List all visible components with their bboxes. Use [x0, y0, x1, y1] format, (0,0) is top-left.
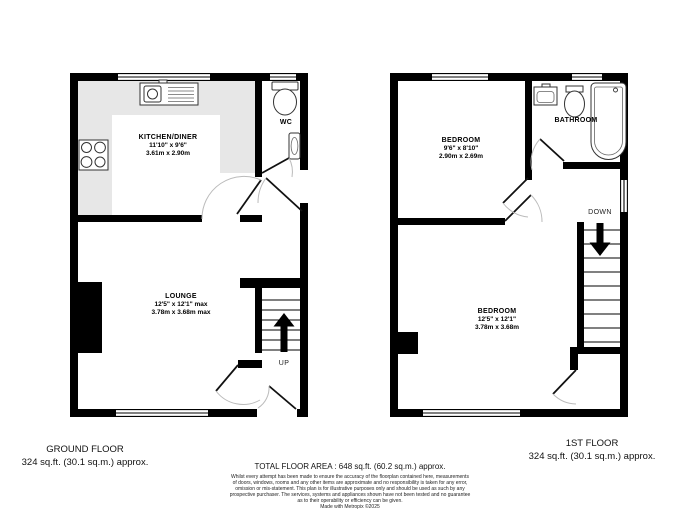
first-floor-plan: BEDROOM 9'6" x 8'10" 2.90m x 2.69m BATHR…	[390, 73, 628, 417]
floorplan-page: KITCHEN/DINER 11'10" x 9'6" 3.61m x 2.90…	[0, 0, 700, 513]
room-dims-metric: 2.90m x 2.69m	[401, 153, 521, 161]
room-name: WC	[268, 119, 304, 127]
wc-basin-icon	[289, 133, 300, 159]
lounge-label: LOUNGE 12'5" x 12'1" max 3.78m x 3.68m m…	[121, 293, 241, 317]
room-name: KITCHEN/DINER	[108, 134, 228, 142]
room-dims-imperial: 12'5" x 12'1" max	[121, 301, 241, 309]
bedroom1-label: BEDROOM 9'6" x 8'10" 2.90m x 2.69m	[401, 137, 521, 161]
disclaimer-text: Whilst every attempt has been made to en…	[140, 475, 560, 510]
down-arrow-icon	[590, 223, 611, 256]
ground-floor-caption: GROUND FLOOR 324 sq.ft. (30.1 sq.m.) app…	[5, 444, 165, 469]
floor-area: 324 sq.ft. (30.1 sq.m.) approx.	[512, 451, 672, 464]
floor-title: 1ST FLOOR	[512, 438, 672, 451]
kitchen-sink-icon	[140, 80, 198, 105]
room-name: BEDROOM	[401, 137, 521, 145]
hob-icon	[79, 140, 108, 170]
room-dims-imperial: 11'10" x 9'6"	[108, 142, 228, 150]
room-name: BEDROOM	[437, 308, 557, 316]
room-dims-metric: 3.78m x 3.68m	[437, 324, 557, 332]
toilet-icon	[565, 86, 585, 117]
room-name: BATHROOM	[536, 117, 616, 125]
bedroom2-label: BEDROOM 12'5" x 12'1" 3.78m x 3.68m	[437, 308, 557, 332]
room-dims-imperial: 9'6" x 8'10"	[401, 145, 521, 153]
first-floor-caption: 1ST FLOOR 324 sq.ft. (30.1 sq.m.) approx…	[512, 438, 672, 463]
floor-area: 324 sq.ft. (30.1 sq.m.) approx.	[5, 457, 165, 470]
toilet-icon	[272, 82, 298, 115]
room-name: LOUNGE	[121, 293, 241, 301]
wc-label: WC	[268, 119, 304, 127]
chimney-breast	[78, 282, 102, 353]
up-label: UP	[266, 360, 302, 367]
room-dims-metric: 3.78m x 3.68m max	[121, 309, 241, 317]
down-label: DOWN	[582, 209, 618, 216]
room-dims-imperial: 12'5" x 12'1"	[437, 316, 557, 324]
floor-title: GROUND FLOOR	[5, 444, 165, 457]
bathroom-label: BATHROOM	[536, 117, 616, 125]
door-leaves	[503, 139, 576, 394]
metropix-credit: Made with Metropix ©2025	[140, 505, 560, 511]
ground-floor-plan: KITCHEN/DINER 11'10" x 9'6" 3.61m x 2.90…	[70, 73, 308, 417]
up-arrow-icon	[274, 313, 295, 352]
chimney-breast	[398, 332, 418, 354]
door-arcs	[503, 139, 576, 404]
room-dims-metric: 3.61m x 2.90m	[108, 150, 228, 158]
kitchen-diner-label: KITCHEN/DINER 11'10" x 9'6" 3.61m x 2.90…	[108, 134, 228, 158]
total-floor-area: TOTAL FLOOR AREA : 648 sq.ft. (60.2 sq.m…	[175, 462, 525, 471]
bathroom-basin-icon	[534, 84, 557, 105]
